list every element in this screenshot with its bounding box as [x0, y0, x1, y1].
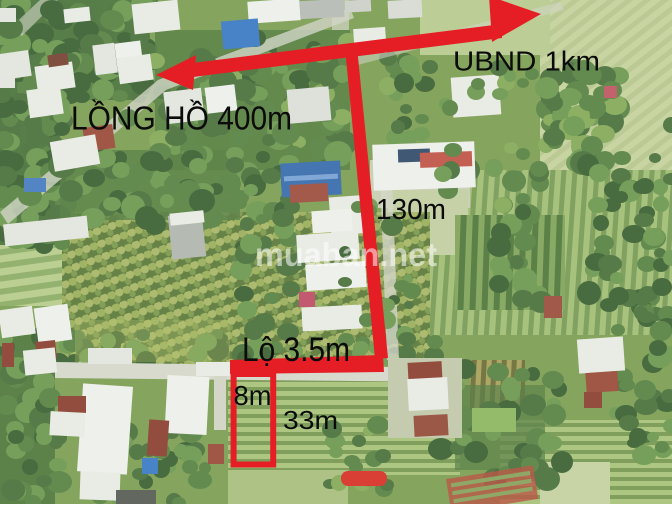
svg-text:130m: 130m: [376, 194, 446, 226]
svg-text:Lộ 3.5m: Lộ 3.5m: [242, 331, 350, 369]
svg-text:8m: 8m: [234, 380, 272, 411]
svg-text:muaban.net: muaban.net: [255, 236, 437, 273]
svg-text:LỒNG HỒ 400m: LỒNG HỒ 400m: [71, 100, 292, 137]
svg-text:33m: 33m: [283, 405, 338, 435]
svg-text:UBND 1km: UBND 1km: [453, 46, 600, 77]
